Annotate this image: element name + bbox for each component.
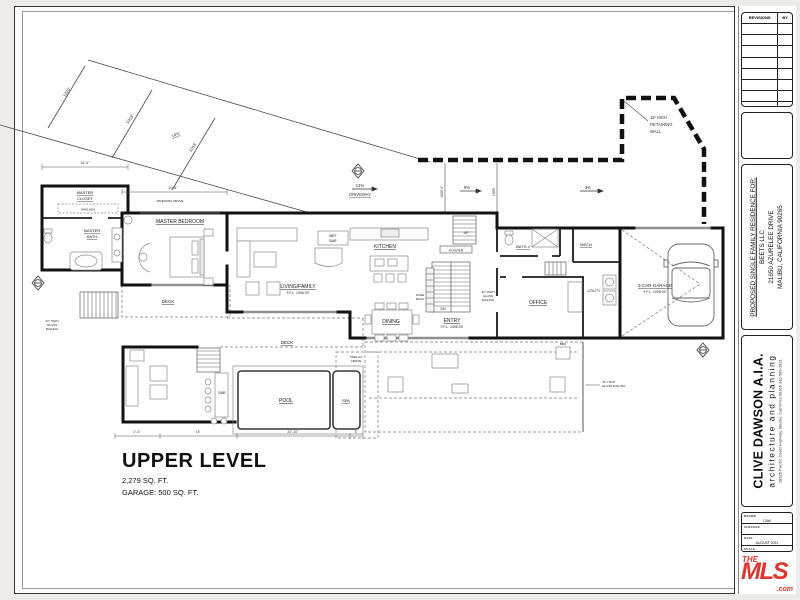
label-kitchen: KITCHEN — [374, 244, 396, 250]
label-railing-left-3: RAILING — [46, 327, 59, 331]
dim-5: 5' — [355, 430, 358, 434]
label-trellis-2: ABOVE — [351, 359, 362, 363]
plan-title: UPPER LEVEL — [122, 450, 266, 473]
page: { "header": { "title": "UPPER LEVEL", "a… — [0, 0, 800, 600]
label-office: OFFICE — [529, 300, 548, 306]
dim-2-4: 2'-4" — [133, 430, 141, 434]
mls-logo: THE MLS ® .com — [741, 555, 793, 593]
label-entry: ENTRY — [444, 318, 462, 324]
revisions-row — [742, 46, 792, 57]
info-row-scale: SCALE 1/4" = 1'-0" — [742, 546, 792, 552]
mls-logo-com: .com — [777, 586, 793, 593]
label-master-bedroom: MASTER BEDROOM — [156, 219, 204, 225]
revisions-row — [742, 69, 792, 80]
wine-rack — [426, 268, 434, 312]
architect-tagline: architecture and planning — [767, 353, 777, 488]
revisions-table: REVISIONS BY — [741, 12, 793, 107]
elev-1009-4: 1009.4' — [440, 186, 444, 198]
label-mech: MECH — [580, 242, 592, 247]
slope-3: 3% — [585, 185, 591, 190]
label-garage-ffl: F.F.L. 1008.00' — [644, 290, 667, 294]
dim-20-6: 20'-6" — [168, 186, 178, 190]
dim-20-10: 20'-10" — [287, 430, 299, 434]
info-row-date: DATE AUGUST 2021 — [742, 535, 792, 546]
label-bath4: BATH 4 — [516, 244, 530, 249]
label-wetbar-1: WET — [329, 234, 338, 238]
label-utility: UTILITY — [587, 289, 601, 293]
label-railing-mid-3: RAILING — [482, 298, 495, 302]
contour-1016: 1016' — [188, 141, 198, 152]
label-dn: DN — [440, 307, 446, 311]
label-master-closet-2: CLOSET — [77, 196, 94, 201]
label-planter: PLANTER — [449, 249, 464, 253]
architect-name: CLIVE DAWSON A.I.A. — [752, 353, 766, 488]
site-lines — [0, 60, 497, 227]
revisions-row — [742, 35, 792, 46]
label-master-bath-2: BATH — [87, 234, 97, 239]
slope-14-driveway: 14% — [356, 183, 365, 188]
elev-1009: 1009' — [492, 187, 496, 196]
label-windows-above: WINDOWS ABOVE — [157, 199, 184, 203]
label-up: UP — [464, 231, 470, 235]
retaining-label-3: WALL — [650, 129, 662, 134]
project-line-1: PROPOSED SINGLE FAMILY RESIDENCE FOR: — [749, 177, 758, 316]
label-living-ffl: F.F.L. 1006.00' — [287, 291, 310, 295]
revisions-row — [742, 91, 792, 102]
by-header: BY — [778, 13, 792, 23]
info-label: DRAWN — [744, 514, 756, 518]
driveway-label: DRIVEWAY — [349, 192, 371, 197]
car — [664, 244, 718, 326]
label-garage: 3-CAR GARAGE — [638, 283, 672, 288]
revisions-row — [742, 24, 792, 35]
info-label: CHECKED — [744, 525, 760, 529]
label-pool: POOL — [279, 398, 293, 404]
dim-14: 14' — [196, 430, 201, 434]
mls-logo-mls: MLS — [741, 560, 787, 584]
label-master-bath-1: MASTER — [84, 228, 101, 233]
revisions-header: REVISIONS — [742, 13, 778, 23]
info-value: CAW — [742, 519, 792, 523]
slope-8: 8% — [464, 185, 470, 190]
label-bar: BAR — [218, 391, 226, 395]
architect-box: CLIVE DAWSON A.I.A. architecture and pla… — [741, 335, 793, 507]
label-wetbar-2: BAR — [329, 239, 337, 243]
plan-garage-area: GARAGE: 500 SQ. FT. — [122, 488, 266, 497]
label-railing-east-2: GLASS RAILING — [602, 384, 626, 388]
revisions-row — [742, 58, 792, 69]
contour-1020: 1020' — [62, 86, 72, 97]
label-deck-master: DECK — [162, 299, 175, 304]
label-wine-2: RACK — [416, 297, 426, 301]
slope-arrows — [352, 187, 603, 193]
plan-area: 2,279 SQ. FT. — [122, 476, 266, 485]
info-value: AUGUST 2021 — [742, 541, 792, 545]
project-info-box: PROPOSED SINGLE FAMILY RESIDENCE FOR: BE… — [741, 164, 793, 330]
title-block: REVISIONS BY PROPOSED SINGLE FAMILY RESI… — [734, 6, 796, 594]
slope-14-upper: 14% — [171, 130, 181, 138]
project-line-2: BEETS LLC — [758, 177, 767, 316]
label-living: LIVING/FAMILY — [280, 284, 316, 290]
info-label: DATE — [744, 536, 753, 540]
label-spa: SPA — [342, 398, 350, 403]
info-row-checked: CHECKED — [742, 524, 792, 535]
contour-1018: 1018' — [125, 113, 135, 124]
project-line-4: MALIBU, CALIFORNIA 90265 — [776, 177, 785, 316]
label-bbq: BBQ — [560, 342, 567, 346]
label-deck-pool: DECK — [281, 340, 294, 345]
architect-address: 28925 Pacific Coast Highway, Malibu, Cal… — [779, 353, 783, 488]
floor-plan-drawing: MASTER CLOSET SHELVES MASTER BATH MASTER… — [0, 0, 800, 600]
project-line-3: 21650 AZURELEE DRIVE — [767, 177, 776, 316]
info-value: 1/4" = 1'-0" — [742, 552, 792, 553]
label-master-closet-1: MASTER — [77, 190, 94, 195]
label-shelves: SHELVES — [81, 208, 95, 212]
dim-16-6: 16'-6" — [80, 161, 90, 165]
plan-title-block: UPPER LEVEL 2,279 SQ. FT. GARAGE: 500 SQ… — [122, 450, 266, 497]
revisions-row — [742, 80, 792, 91]
info-row-drawn: DRAWN CAW — [742, 513, 792, 524]
retaining-label-1: 18' HIGH — [650, 115, 667, 120]
revisions-row — [742, 102, 792, 107]
info-label: SCALE — [744, 547, 755, 551]
mls-logo-reg: ® — [782, 561, 785, 566]
site-labels: 1020' 1018' 1016' 14% 14% DRIVEWAY 8% 3%… — [62, 86, 673, 197]
stamp-box — [741, 112, 793, 159]
label-entry-ffl: F.F.L. 1006.00' — [441, 325, 464, 329]
label-dining: DINING — [382, 319, 400, 325]
retaining-label-2: RETAINING — [650, 122, 673, 127]
drawing-info-table: DRAWN CAW CHECKED DATE AUGUST 2021 SCALE… — [741, 512, 793, 552]
